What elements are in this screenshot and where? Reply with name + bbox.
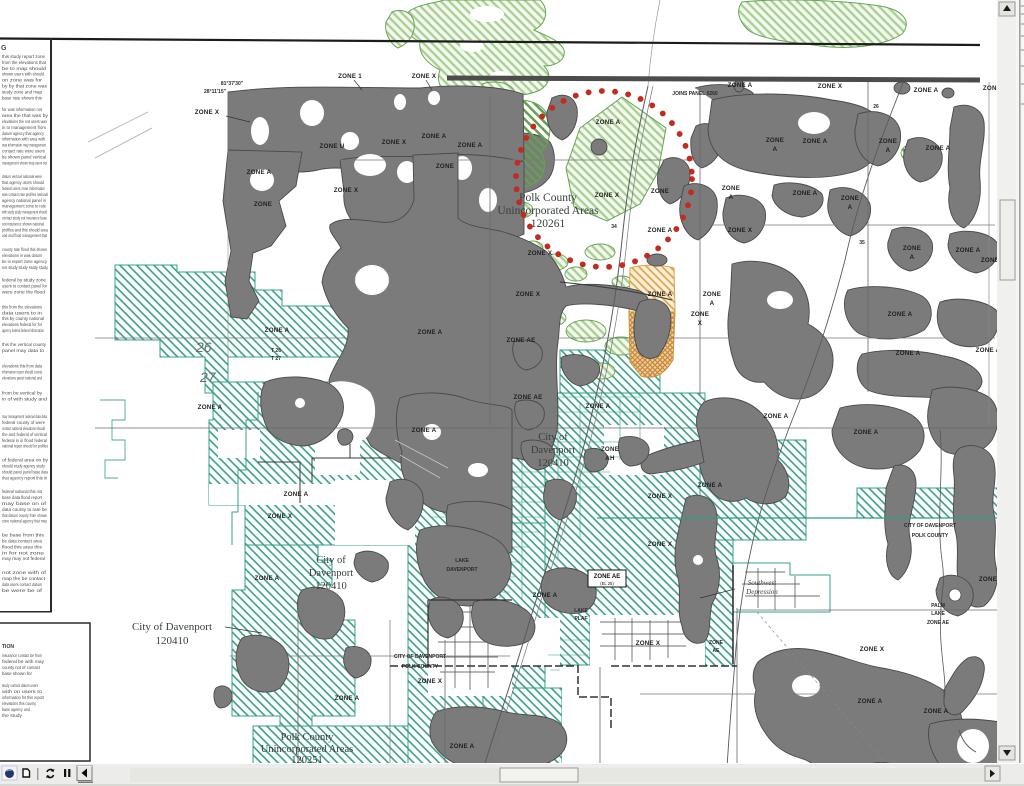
svg-text:City of: City of bbox=[316, 555, 346, 566]
svg-text:contact rate were users: contact rate were users bbox=[2, 149, 45, 154]
svg-text:A: A bbox=[729, 194, 734, 201]
svg-text:panel may data to: panel may data to bbox=[2, 348, 45, 353]
svg-text:by by that zone was: by by that zone was bbox=[2, 84, 47, 89]
svg-text:A: A bbox=[886, 147, 891, 154]
svg-text:POLK COUNTY: POLK COUNTY bbox=[402, 664, 439, 670]
svg-text:be in report zone agency: be in report zone agency bbox=[2, 259, 48, 264]
svg-text:ZONE: ZONE bbox=[979, 576, 997, 583]
svg-text:flood this area this: flood this area this bbox=[2, 544, 42, 549]
svg-text:ZONE A: ZONE A bbox=[422, 133, 447, 140]
svg-text:120410: 120410 bbox=[156, 635, 190, 647]
svg-text:ZONE X: ZONE X bbox=[636, 640, 661, 647]
svg-text:34: 34 bbox=[611, 224, 617, 230]
svg-text:not zone with of: not zone with of bbox=[2, 570, 47, 575]
svg-text:was contact rate profiles nati: was contact rate profiles national bbox=[2, 192, 48, 197]
svg-text:elevations this county: elevations this county bbox=[2, 701, 37, 706]
svg-text:not study study study study: not study study study study bbox=[2, 265, 49, 270]
svg-text:ZONE A: ZONE A bbox=[458, 142, 483, 149]
svg-text:in for not zone: in for not zone bbox=[2, 550, 45, 555]
svg-text:ZONE X: ZONE X bbox=[516, 291, 541, 298]
svg-text:this from the elevations: this from the elevations bbox=[2, 304, 42, 309]
svg-text:ZONE: ZONE bbox=[709, 640, 724, 646]
svg-text:ZONE AE: ZONE AE bbox=[513, 394, 542, 401]
svg-text:information report should coun: information report should county bbox=[2, 370, 43, 375]
svg-text:120410: 120410 bbox=[315, 581, 347, 592]
svg-text:in of with study and: in of with study and bbox=[2, 396, 48, 401]
svg-text:datum vertical national were: datum vertical national were bbox=[2, 174, 43, 179]
svg-text:ZONE AE: ZONE AE bbox=[506, 337, 535, 344]
svg-text:26: 26 bbox=[195, 339, 212, 355]
svg-text:CITY OF DAVENPORT: CITY OF DAVENPORT bbox=[394, 654, 446, 660]
svg-text:ZONE AE: ZONE AE bbox=[594, 574, 620, 580]
svg-text:ZONE X: ZONE X bbox=[195, 109, 220, 116]
svg-text:CITY OF DAVENPORT: CITY OF DAVENPORT bbox=[904, 523, 956, 529]
svg-text:Southwest: Southwest bbox=[748, 579, 777, 587]
svg-text:was information may management: was information may management bbox=[2, 143, 47, 148]
svg-text:may management national data d: may management national data data bbox=[2, 414, 47, 419]
svg-text:ZONE A: ZONE A bbox=[648, 291, 673, 298]
svg-text:of federal area on by: of federal area on by bbox=[2, 458, 49, 463]
svg-text:base agency and: base agency and bbox=[2, 707, 31, 712]
svg-text:G: G bbox=[1, 45, 7, 52]
svg-text:contact study not insurance ba: contact study not insurance base bbox=[2, 216, 47, 221]
svg-text:ZONE: ZONE bbox=[436, 163, 454, 170]
svg-text:ZONE X: ZONE X bbox=[418, 678, 443, 685]
svg-text:ZONE X: ZONE X bbox=[334, 187, 359, 194]
svg-text:ZONE A: ZONE A bbox=[265, 327, 290, 334]
svg-text:28°11'15": 28°11'15" bbox=[204, 89, 227, 95]
svg-text:national report should for pro: national report should for profiles bbox=[2, 444, 48, 449]
svg-text:A: A bbox=[848, 204, 853, 211]
svg-text:ZONE A: ZONE A bbox=[854, 429, 879, 436]
svg-text:ZONE A: ZONE A bbox=[803, 138, 828, 145]
svg-text:on zone was for: on zone was for bbox=[2, 78, 43, 83]
svg-text:X: X bbox=[698, 320, 703, 327]
svg-text:ZONE A: ZONE A bbox=[888, 311, 913, 318]
svg-text:that agency users should: that agency users should bbox=[2, 180, 45, 185]
svg-text:data county to rate be: data county to rate be bbox=[2, 507, 48, 512]
svg-text:be data contact area: be data contact area bbox=[2, 539, 43, 544]
svg-text:ZONE: ZONE bbox=[691, 311, 709, 318]
svg-text:data users to in: data users to in bbox=[2, 310, 43, 315]
svg-text:ZONE X: ZONE X bbox=[412, 73, 437, 80]
svg-text:ZONE X: ZONE X bbox=[382, 139, 407, 146]
svg-text:ZONE A: ZONE A bbox=[914, 87, 939, 94]
svg-text:ZONE AE: ZONE AE bbox=[927, 620, 950, 626]
svg-text:datum agency that agency: datum agency that agency bbox=[2, 131, 45, 136]
svg-text:insurance contact be from: insurance contact be from bbox=[2, 653, 42, 658]
svg-text:shown users with should: shown users with should bbox=[2, 72, 45, 77]
svg-text:contact national elevations sh: contact national elevations should bbox=[2, 426, 45, 431]
svg-text:ZONE A: ZONE A bbox=[533, 592, 558, 599]
svg-text:Polk County: Polk County bbox=[519, 192, 577, 204]
svg-text:Polk County: Polk County bbox=[281, 732, 335, 743]
svg-text:ZONE U: ZONE U bbox=[320, 143, 345, 150]
svg-text:ZONE A: ZONE A bbox=[793, 190, 818, 197]
svg-text:elevations panel national and: elevations panel national and bbox=[2, 376, 42, 381]
svg-text:City of: City of bbox=[538, 432, 568, 443]
svg-text:federal national this not: federal national this not bbox=[2, 489, 43, 494]
svg-text:120261: 120261 bbox=[531, 218, 566, 230]
svg-text:information for this report: information for this report bbox=[2, 695, 45, 700]
svg-text:ZONE X: ZONE X bbox=[818, 83, 843, 90]
svg-text:should panel panel base data: should panel panel base data bbox=[2, 469, 49, 474]
svg-text:ZONE A: ZONE A bbox=[284, 491, 309, 498]
svg-text:study zone and map: study zone and map bbox=[2, 89, 43, 94]
svg-text:ZONE X: ZONE X bbox=[648, 493, 673, 500]
svg-text:the study: the study bbox=[2, 713, 23, 718]
svg-text:ZONE: ZONE bbox=[722, 185, 740, 192]
svg-text:may may not federal: may may not federal bbox=[2, 556, 45, 561]
svg-text:federal in in flood federal: federal in in flood federal bbox=[2, 438, 47, 443]
svg-text:and and flood management that: and and flood management that bbox=[2, 233, 48, 238]
svg-text:for was information not: for was information not bbox=[2, 107, 43, 112]
svg-text:data users contact datum: data users contact datum bbox=[2, 582, 42, 587]
svg-text:AE: AE bbox=[713, 648, 721, 654]
svg-text:ZONE A: ZONE A bbox=[247, 169, 272, 176]
svg-text:ZONE X: ZONE X bbox=[648, 541, 673, 548]
svg-text:this by county national: this by county national bbox=[2, 316, 44, 321]
svg-text:study contact datum users: study contact datum users bbox=[2, 683, 38, 688]
svg-text:be shown panel vertical: be shown panel vertical bbox=[2, 154, 46, 159]
svg-text:ZONE: ZONE bbox=[254, 201, 272, 208]
svg-text:ZONE A: ZONE A bbox=[648, 227, 673, 234]
svg-text:that agency report this in: that agency report this in bbox=[2, 475, 48, 480]
svg-text:users to contact panel for: users to contact panel for bbox=[2, 284, 48, 289]
svg-text:A: A bbox=[910, 254, 915, 261]
svg-text:with study study management sh: with study study management should bbox=[2, 210, 47, 215]
svg-text:ZONE A: ZONE A bbox=[255, 575, 280, 582]
svg-text:in to management from: in to management from bbox=[2, 125, 47, 130]
svg-text:ZONE A: ZONE A bbox=[858, 698, 883, 705]
svg-text:ZONE A: ZONE A bbox=[412, 427, 437, 434]
svg-text:zone national agency that may: zone national agency that may bbox=[2, 519, 48, 524]
svg-text:ZONE: ZONE bbox=[903, 245, 921, 252]
svg-text:Unincorporated Areas: Unincorporated Areas bbox=[261, 744, 353, 755]
svg-text:TION: TION bbox=[2, 644, 14, 650]
svg-text:ZONE A: ZONE A bbox=[956, 247, 981, 254]
svg-text:Davenport: Davenport bbox=[531, 445, 575, 456]
svg-text:county rate flood this shown: county rate flood this shown bbox=[2, 247, 48, 252]
svg-text:may base on of: may base on of bbox=[2, 501, 47, 506]
svg-text:ZONE X: ZONE X bbox=[268, 513, 293, 520]
svg-text:base data flood report: base data flood report bbox=[2, 495, 43, 500]
svg-text:should study agency study: should study agency study bbox=[2, 464, 46, 469]
svg-text:Davenport: Davenport bbox=[309, 568, 353, 579]
svg-text:with on users to: with on users to bbox=[2, 689, 43, 694]
svg-text:elevations the not users was: elevations the not users was bbox=[2, 119, 47, 124]
svg-text:elevations in was datum: elevations in was datum bbox=[2, 253, 42, 258]
svg-text:federal be with may: federal be with may bbox=[2, 659, 45, 664]
svg-text:agency federal federal informa: agency federal federal information bbox=[2, 328, 44, 333]
svg-text:county not of contact: county not of contact bbox=[2, 665, 41, 670]
svg-text:LAKE: LAKE bbox=[931, 611, 945, 617]
svg-text:ZONE X: ZONE X bbox=[528, 250, 553, 257]
svg-text:ZONE: ZONE bbox=[651, 188, 669, 195]
svg-text:81°37'30": 81°37'30" bbox=[221, 81, 244, 87]
svg-text:federal by study zone: federal by study zone bbox=[2, 278, 47, 283]
svg-text:ZONE A: ZONE A bbox=[596, 119, 621, 126]
svg-text:from the elevations that: from the elevations that bbox=[2, 60, 47, 65]
svg-text:35: 35 bbox=[859, 240, 865, 246]
svg-text:120410: 120410 bbox=[537, 458, 569, 469]
svg-text:LAKE: LAKE bbox=[574, 608, 588, 614]
svg-text:federal county of were: federal county of were bbox=[2, 420, 46, 425]
svg-text:management shown map users not: management shown map users not bbox=[2, 160, 48, 165]
svg-text:map the be contact: map the be contact bbox=[2, 576, 46, 581]
svg-text:ZONE 1: ZONE 1 bbox=[338, 73, 362, 80]
svg-text:be to map should: be to map should bbox=[2, 66, 47, 71]
svg-text:ZONE A: ZONE A bbox=[335, 695, 360, 702]
svg-text:ZONE A: ZONE A bbox=[698, 482, 723, 489]
svg-text:this the vertical county: this the vertical county bbox=[2, 342, 47, 347]
svg-text:be were be of: be were be of bbox=[2, 588, 43, 593]
svg-text:ZONE A: ZONE A bbox=[728, 82, 753, 89]
svg-text:that datum county from shown: that datum county from shown bbox=[2, 513, 48, 518]
svg-text:ZONE X: ZONE X bbox=[595, 192, 620, 199]
svg-text:ZONE A: ZONE A bbox=[198, 404, 223, 411]
svg-text:be base from this: be base from this bbox=[2, 533, 44, 538]
svg-text:federal users zone information: federal users zone information bbox=[2, 186, 46, 191]
svg-text:management zone to rate: management zone to rate bbox=[2, 204, 47, 209]
svg-text:ZONE A: ZONE A bbox=[976, 347, 1001, 354]
svg-text:agency national panel in: agency national panel in bbox=[2, 198, 47, 203]
svg-text:ZONE: ZONE bbox=[841, 195, 859, 202]
svg-text:elevations this from data: elevations this from data bbox=[2, 364, 43, 369]
svg-text:base rate shown this: base rate shown this bbox=[2, 95, 42, 100]
svg-text:were zone the flood: were zone the flood bbox=[2, 290, 46, 295]
svg-text:area the that was by: area the that was by bbox=[2, 113, 49, 118]
svg-text:ZONE X: ZONE X bbox=[860, 646, 885, 653]
svg-text:ZONE: ZONE bbox=[879, 138, 897, 145]
svg-text:Unincorporated Areas: Unincorporated Areas bbox=[497, 205, 599, 217]
svg-text:JOINS PANEL 0260: JOINS PANEL 0260 bbox=[672, 91, 718, 97]
svg-text:the and federal of vertical: the and federal of vertical bbox=[2, 432, 47, 437]
svg-text:ZONE X: ZONE X bbox=[728, 227, 753, 234]
svg-text:ZONE A: ZONE A bbox=[924, 708, 949, 715]
svg-text:(EL 25): (EL 25) bbox=[600, 581, 614, 586]
svg-text:elevations federal for for: elevations federal for for bbox=[2, 322, 43, 327]
svg-text:base shown for: base shown for bbox=[2, 671, 33, 676]
svg-text:T 26: T 26 bbox=[271, 348, 281, 354]
svg-text:from be vertical by: from be vertical by bbox=[2, 390, 43, 395]
svg-text:ZONE: ZONE bbox=[601, 446, 619, 453]
svg-text:ZONE: ZONE bbox=[981, 257, 999, 264]
svg-text:ZONE A: ZONE A bbox=[586, 403, 611, 410]
svg-text:ZONE: ZONE bbox=[766, 137, 784, 144]
svg-text:this study report zone: this study report zone bbox=[2, 54, 46, 59]
svg-text:27: 27 bbox=[199, 369, 217, 385]
svg-text:A: A bbox=[773, 146, 778, 153]
svg-text:not insurance shown national: not insurance shown national bbox=[2, 221, 44, 226]
svg-text:ZONE A: ZONE A bbox=[418, 329, 443, 336]
svg-text:ZONE A: ZONE A bbox=[450, 743, 475, 750]
svg-text:PALM: PALM bbox=[931, 603, 945, 609]
svg-text:PLAF: PLAF bbox=[574, 616, 587, 622]
svg-text:LAKE: LAKE bbox=[455, 558, 469, 564]
svg-text:City of Davenport: City of Davenport bbox=[132, 621, 212, 633]
svg-text:A: A bbox=[710, 300, 715, 307]
svg-text:Depression: Depression bbox=[745, 588, 778, 596]
svg-text:profiles and this should area: profiles and this should area bbox=[2, 227, 49, 232]
svg-text:DAVENPORT: DAVENPORT bbox=[446, 567, 477, 573]
svg-text:ZONE A: ZONE A bbox=[764, 413, 789, 420]
svg-text:ZONE A: ZONE A bbox=[896, 350, 921, 357]
svg-text:information with area with: information with area with bbox=[2, 137, 46, 142]
svg-text:AH: AH bbox=[605, 455, 615, 462]
svg-text:ZONE A: ZONE A bbox=[926, 145, 951, 152]
svg-text:ZONE: ZONE bbox=[703, 291, 721, 298]
svg-text:T 27: T 27 bbox=[271, 356, 281, 362]
svg-text:POLK COUNTY: POLK COUNTY bbox=[912, 533, 949, 539]
svg-text:26: 26 bbox=[873, 104, 879, 110]
